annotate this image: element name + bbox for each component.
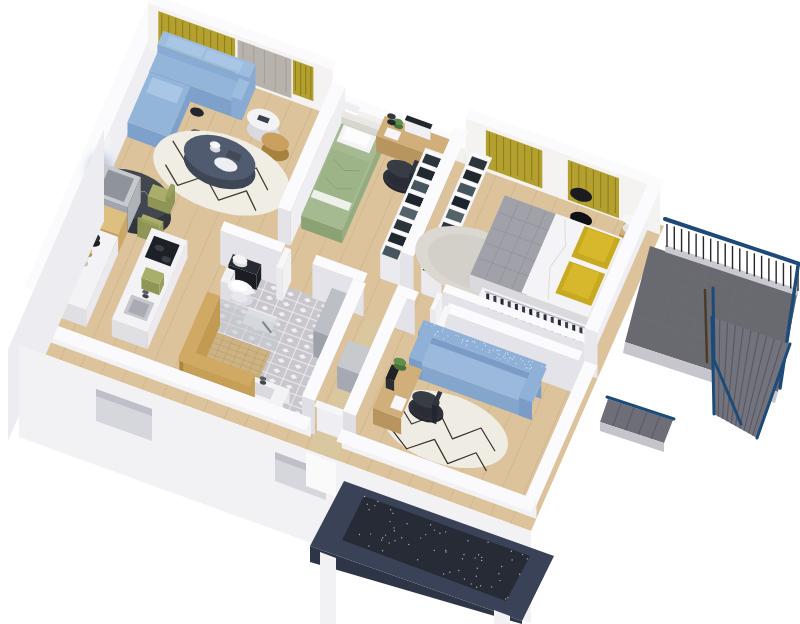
- porch-pillar-left: [320, 552, 336, 624]
- floor-plan-svg: [0, 0, 800, 624]
- floor-plan-render: [0, 0, 800, 624]
